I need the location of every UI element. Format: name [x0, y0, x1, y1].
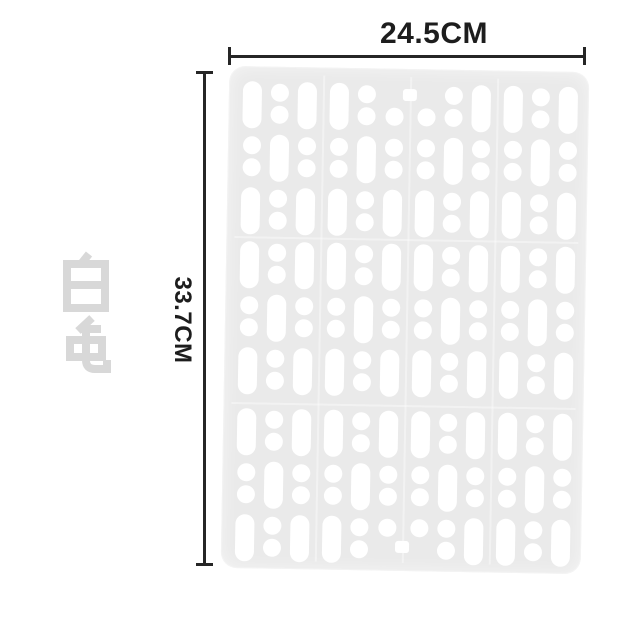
- mat-hole-pill: [557, 193, 577, 240]
- mat-hole-circle: [382, 299, 400, 317]
- drain-mat: [221, 66, 590, 574]
- mat-hole-circle: [353, 373, 371, 391]
- mat-hole-circle: [414, 299, 432, 317]
- mat-hole-pill: [235, 514, 255, 561]
- mat-hole-pill: [443, 138, 463, 185]
- mat-hole-circle: [242, 158, 260, 176]
- mat-hole-circle: [378, 519, 396, 537]
- mat-hole-circle: [379, 466, 397, 484]
- color-variant-label: 白色: [54, 250, 118, 382]
- mat-hole-circle: [324, 465, 342, 483]
- mat-hole-circle: [355, 267, 373, 285]
- mat-hole-pill: [382, 244, 402, 291]
- height-dimension-label: 33.7CM: [168, 276, 196, 363]
- mat-hole-circle: [527, 354, 545, 372]
- mat-hole-pill: [269, 135, 289, 182]
- mat-hole-circle: [439, 414, 457, 432]
- mat-hole-pill: [298, 82, 318, 129]
- mat-hole-circle: [472, 140, 490, 158]
- mat-hole-circle: [442, 247, 460, 265]
- mat-hole-circle: [268, 244, 286, 262]
- mat-hole-pill: [295, 242, 315, 289]
- color-variant-glyphs-icon: [54, 250, 118, 382]
- mat-hole-pill: [466, 412, 486, 459]
- mat-hole-circle: [529, 248, 547, 266]
- mat-hole-circle: [266, 350, 284, 368]
- mat-hole-circle: [443, 215, 461, 233]
- mat-hole-pill: [504, 86, 524, 133]
- mat-hole-pill: [556, 247, 576, 294]
- mat-hole-pill: [501, 246, 521, 293]
- mat-hole-circle: [443, 193, 461, 211]
- mat-hole-pill: [322, 516, 342, 563]
- mat-hole-circle: [498, 468, 516, 486]
- mat-hole-circle: [326, 320, 344, 338]
- mat-hole-circle: [385, 108, 403, 126]
- mat-hole-circle: [239, 318, 257, 336]
- mat-hole-circle: [465, 489, 483, 507]
- mat-hole-circle: [355, 245, 373, 263]
- mat-hole-circle: [417, 139, 435, 157]
- mat-hole-circle: [440, 375, 458, 393]
- mat-hole-circle: [298, 137, 316, 155]
- glyph-bai: [67, 254, 105, 308]
- mat-hole-circle: [266, 372, 284, 390]
- mat-seam-vertical: [488, 79, 498, 565]
- mat-hole-circle: [553, 469, 571, 487]
- mat-hole-pill: [296, 188, 316, 235]
- mat-hole-circle: [265, 433, 283, 451]
- mat-hole-circle: [417, 108, 435, 126]
- mat-hole-circle: [269, 212, 287, 230]
- mat-hole-pill: [415, 190, 435, 237]
- mat-hole-circle: [416, 161, 434, 179]
- mat-hole-circle: [356, 213, 374, 231]
- mat-hole-pill: [327, 243, 347, 290]
- mat-hole-pill: [330, 83, 350, 130]
- mat-hole-pill: [379, 411, 399, 458]
- mat-hole-pill: [530, 139, 550, 186]
- mat-hole-pill: [469, 245, 489, 292]
- mat-hole-pill: [263, 462, 283, 509]
- mat-hole-circle: [243, 136, 261, 154]
- mat-hole-circle: [524, 543, 542, 561]
- mat-hole-circle: [468, 322, 486, 340]
- mat-hole-pill: [266, 295, 286, 342]
- mat-hole-circle: [237, 463, 255, 481]
- mat-hole-circle: [353, 351, 371, 369]
- mat-hole-pill: [470, 191, 490, 238]
- mat-hole-circle: [500, 323, 518, 341]
- mat-hole-circle: [292, 464, 310, 482]
- mat-hole-circle: [263, 539, 281, 557]
- mat-hole-circle: [552, 491, 570, 509]
- mat-notch-hole: [403, 89, 417, 101]
- mat-hole-pill: [290, 515, 310, 562]
- mat-hole-circle: [530, 216, 548, 234]
- mat-hole-pill: [380, 350, 400, 397]
- mat-hole-circle: [559, 142, 577, 160]
- mat-hole-pill: [467, 351, 487, 398]
- mat-hole-circle: [263, 517, 281, 535]
- mat-hole-circle: [501, 301, 519, 319]
- mat-hole-circle: [445, 87, 463, 105]
- mat-hole-pill: [238, 347, 258, 394]
- mat-hole-circle: [358, 85, 376, 103]
- mat-hole-circle: [271, 106, 289, 124]
- mat-hole-circle: [269, 190, 287, 208]
- mat-seam-vertical: [314, 76, 324, 562]
- mat-hole-circle: [555, 324, 573, 342]
- mat-hole-circle: [327, 298, 345, 316]
- mat-hole-pill: [237, 408, 257, 455]
- mat-hole-circle: [466, 467, 484, 485]
- mat-hole-pill: [292, 409, 312, 456]
- width-dimension-tick-left: [228, 47, 231, 65]
- mat-hole-circle: [411, 488, 429, 506]
- mat-hole-circle: [265, 411, 283, 429]
- mat-hole-circle: [532, 88, 550, 106]
- mat-hole-circle: [385, 139, 403, 157]
- mat-hole-pill: [328, 189, 348, 236]
- mat-hole-circle: [356, 191, 374, 209]
- mat-hole-circle: [358, 107, 376, 125]
- mat-hole-circle: [330, 138, 348, 156]
- mat-hole-circle: [529, 270, 547, 288]
- mat-hole-circle: [295, 297, 313, 315]
- mat-hole-pill: [464, 518, 484, 565]
- mat-hole-circle: [440, 353, 458, 371]
- mat-hole-pill: [411, 411, 431, 458]
- mat-hole-pill: [551, 520, 571, 567]
- mat-hole-pill: [383, 190, 403, 237]
- mat-hole-circle: [558, 164, 576, 182]
- mat-hole-pill: [325, 349, 345, 396]
- mat-hole-pill: [440, 298, 460, 345]
- mat-hole-circle: [411, 466, 429, 484]
- mat-hole-pill: [356, 136, 376, 183]
- mat-hole-pill: [350, 463, 370, 510]
- mat-hole-circle: [297, 159, 315, 177]
- mat-hole-pill: [240, 241, 260, 288]
- mat-hole-pill: [353, 296, 373, 343]
- height-dimension-tick-bottom: [196, 563, 213, 566]
- mat-hole-circle: [527, 376, 545, 394]
- mat-hole-circle: [437, 542, 455, 560]
- mat-hole-circle: [384, 161, 402, 179]
- mat-hole-circle: [530, 194, 548, 212]
- mat-hole-circle: [410, 519, 428, 537]
- mat-hole-pill: [496, 519, 516, 566]
- mat-hole-circle: [271, 84, 289, 102]
- mat-hole-pill: [243, 81, 263, 128]
- product-image-canvas: 白色 24.5CM 33.7CM: [0, 0, 640, 640]
- mat-hole-pill: [293, 348, 313, 395]
- mat-hole-circle: [526, 437, 544, 455]
- mat-hole-circle: [497, 490, 515, 508]
- mat-hole-circle: [442, 269, 460, 287]
- mat-hole-pill: [554, 353, 574, 400]
- mat-hole-circle: [237, 485, 255, 503]
- mat-hole-pill: [499, 352, 519, 399]
- mat-hole-circle: [381, 321, 399, 339]
- mat-hole-circle: [324, 487, 342, 505]
- height-dimension-tick-top: [196, 71, 213, 74]
- mat-hole-pill: [437, 465, 457, 512]
- glyph-se: [70, 318, 107, 369]
- mat-notch-hole: [395, 541, 409, 553]
- mat-hole-pill: [498, 413, 518, 460]
- mat-hole-circle: [294, 319, 312, 337]
- mat-hole-pill: [524, 466, 544, 513]
- mat-hole-circle: [469, 300, 487, 318]
- mat-hole-circle: [445, 109, 463, 127]
- mat-hole-pill: [502, 192, 522, 239]
- mat-hole-pill: [472, 85, 492, 132]
- mat-hole-circle: [526, 415, 544, 433]
- mat-hole-pill: [414, 244, 434, 291]
- mat-hole-circle: [437, 520, 455, 538]
- mat-hole-circle: [350, 518, 368, 536]
- mat-hole-pill: [412, 350, 432, 397]
- mat-hole-circle: [268, 266, 286, 284]
- mat-hole-circle: [352, 434, 370, 452]
- mat-hole-pill: [527, 299, 547, 346]
- mat-hole-pill: [241, 187, 261, 234]
- mat-hole-pill: [559, 87, 579, 134]
- mat-hole-pill: [553, 414, 573, 461]
- mat-hole-circle: [379, 488, 397, 506]
- mat-seam-vertical: [401, 77, 411, 563]
- mat-hole-circle: [532, 110, 550, 128]
- width-dimension-tick-right: [583, 47, 586, 65]
- mat-hole-circle: [413, 321, 431, 339]
- mat-hole-circle: [504, 141, 522, 159]
- mat-hole-circle: [503, 163, 521, 181]
- mat-hole-circle: [471, 162, 489, 180]
- mat-hole-circle: [352, 412, 370, 430]
- mat-hole-circle: [524, 521, 542, 539]
- height-dimension-line: [203, 72, 206, 566]
- mat-hole-circle: [240, 296, 258, 314]
- mat-hole-circle: [350, 540, 368, 558]
- mat-hole-circle: [556, 302, 574, 320]
- mat-hole-circle: [439, 436, 457, 454]
- mat-hole-circle: [329, 160, 347, 178]
- width-dimension-line: [229, 55, 586, 58]
- width-dimension-label: 24.5CM: [380, 17, 488, 51]
- mat-hole-circle: [292, 486, 310, 504]
- mat-hole-pill: [324, 410, 344, 457]
